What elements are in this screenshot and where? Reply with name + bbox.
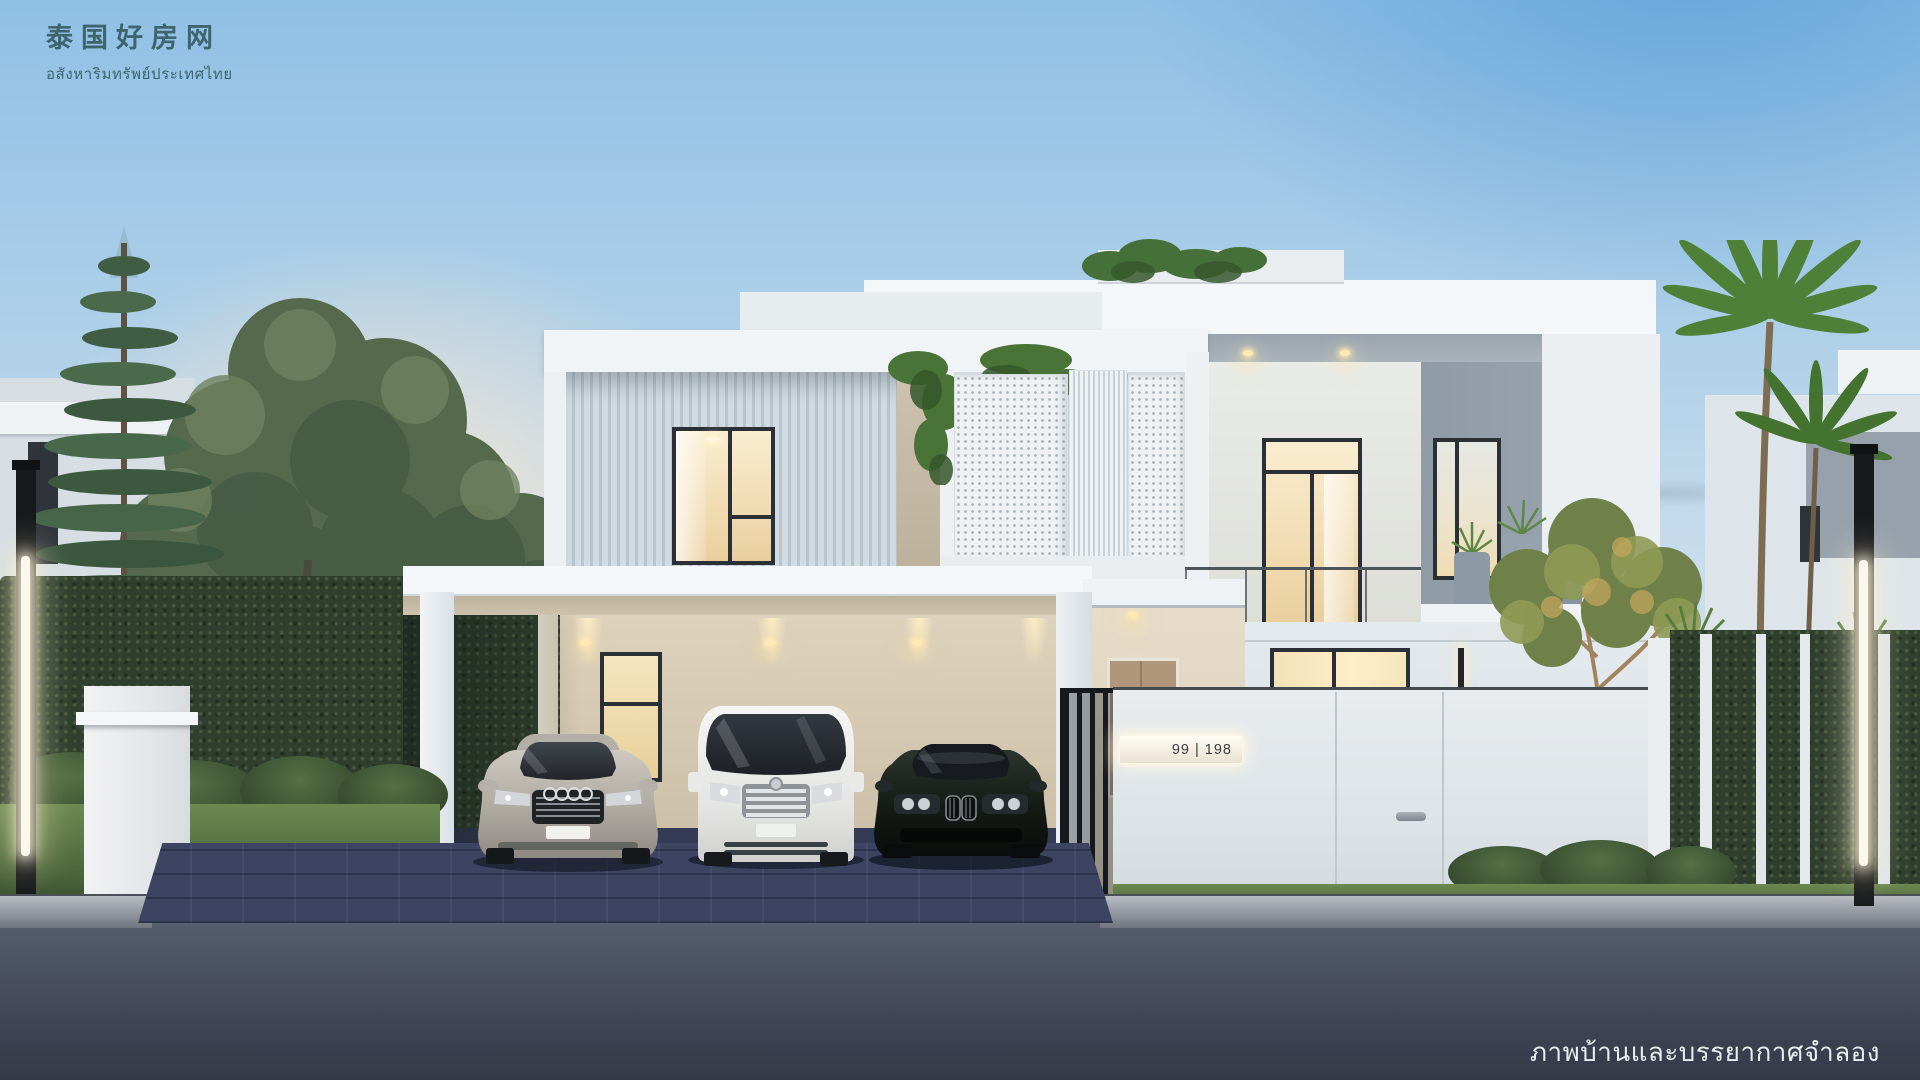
left-wing-corner — [544, 372, 566, 568]
fence-seam-2 — [1442, 692, 1444, 906]
curb-left — [0, 894, 152, 928]
window-mullion-h — [728, 515, 771, 519]
carport-fascia — [403, 566, 1092, 596]
window-curtain — [676, 431, 706, 561]
porch-downlight — [1128, 612, 1138, 618]
fence-door-handle — [1396, 812, 1426, 821]
lamp-post-right-cap — [1850, 444, 1878, 454]
window-mullion-v — [728, 431, 732, 561]
window-ceiling-light — [706, 437, 720, 442]
roof-planter-greenery — [1078, 220, 1273, 286]
watermark-logo-sub: อสังหาริมทรัพย์ประเทศไทย — [46, 62, 233, 86]
louver-screen — [1069, 370, 1127, 564]
fence-slat-r3 — [1800, 634, 1810, 906]
balcony-downlight-2 — [1340, 350, 1350, 356]
address-number: 99 | 198 — [1172, 742, 1232, 758]
balcony-downlight-1 — [1243, 350, 1253, 356]
car-sedan-dark — [866, 722, 1056, 872]
address-plate: 99 | 198 — [1120, 736, 1242, 763]
watermark-disclaimer: ภาพบ้านและบรรยากาศจำลอง — [1530, 1032, 1880, 1073]
fence-seam-1 — [1335, 692, 1337, 906]
lamp-right-light — [1859, 560, 1868, 866]
fence-slat-r2 — [1756, 634, 1766, 906]
roof-left-parapet — [740, 292, 1102, 334]
watermark-logo: 泰国好房网 อสังหาริมทรัพย์ประเทศไทย — [46, 16, 233, 86]
exterior-rendering: 99 | 198 — [0, 0, 1920, 1080]
car-sedan-silver — [468, 724, 668, 874]
perforated-screen-2 — [1128, 374, 1187, 562]
lamp-left-light — [21, 556, 30, 856]
fence-slat-r4 — [1878, 634, 1890, 906]
car-van-white — [684, 694, 868, 872]
palm-trees — [1620, 240, 1920, 672]
porch-fascia — [1083, 579, 1245, 608]
utility-box-ledge — [76, 712, 198, 725]
watermark-logo-cn: 泰国好房网 — [46, 16, 233, 55]
perforated-screen-1 — [954, 374, 1068, 562]
left-wing-window — [672, 427, 775, 565]
curb-right — [1100, 894, 1920, 928]
lamp-post-left-cap — [12, 460, 40, 470]
